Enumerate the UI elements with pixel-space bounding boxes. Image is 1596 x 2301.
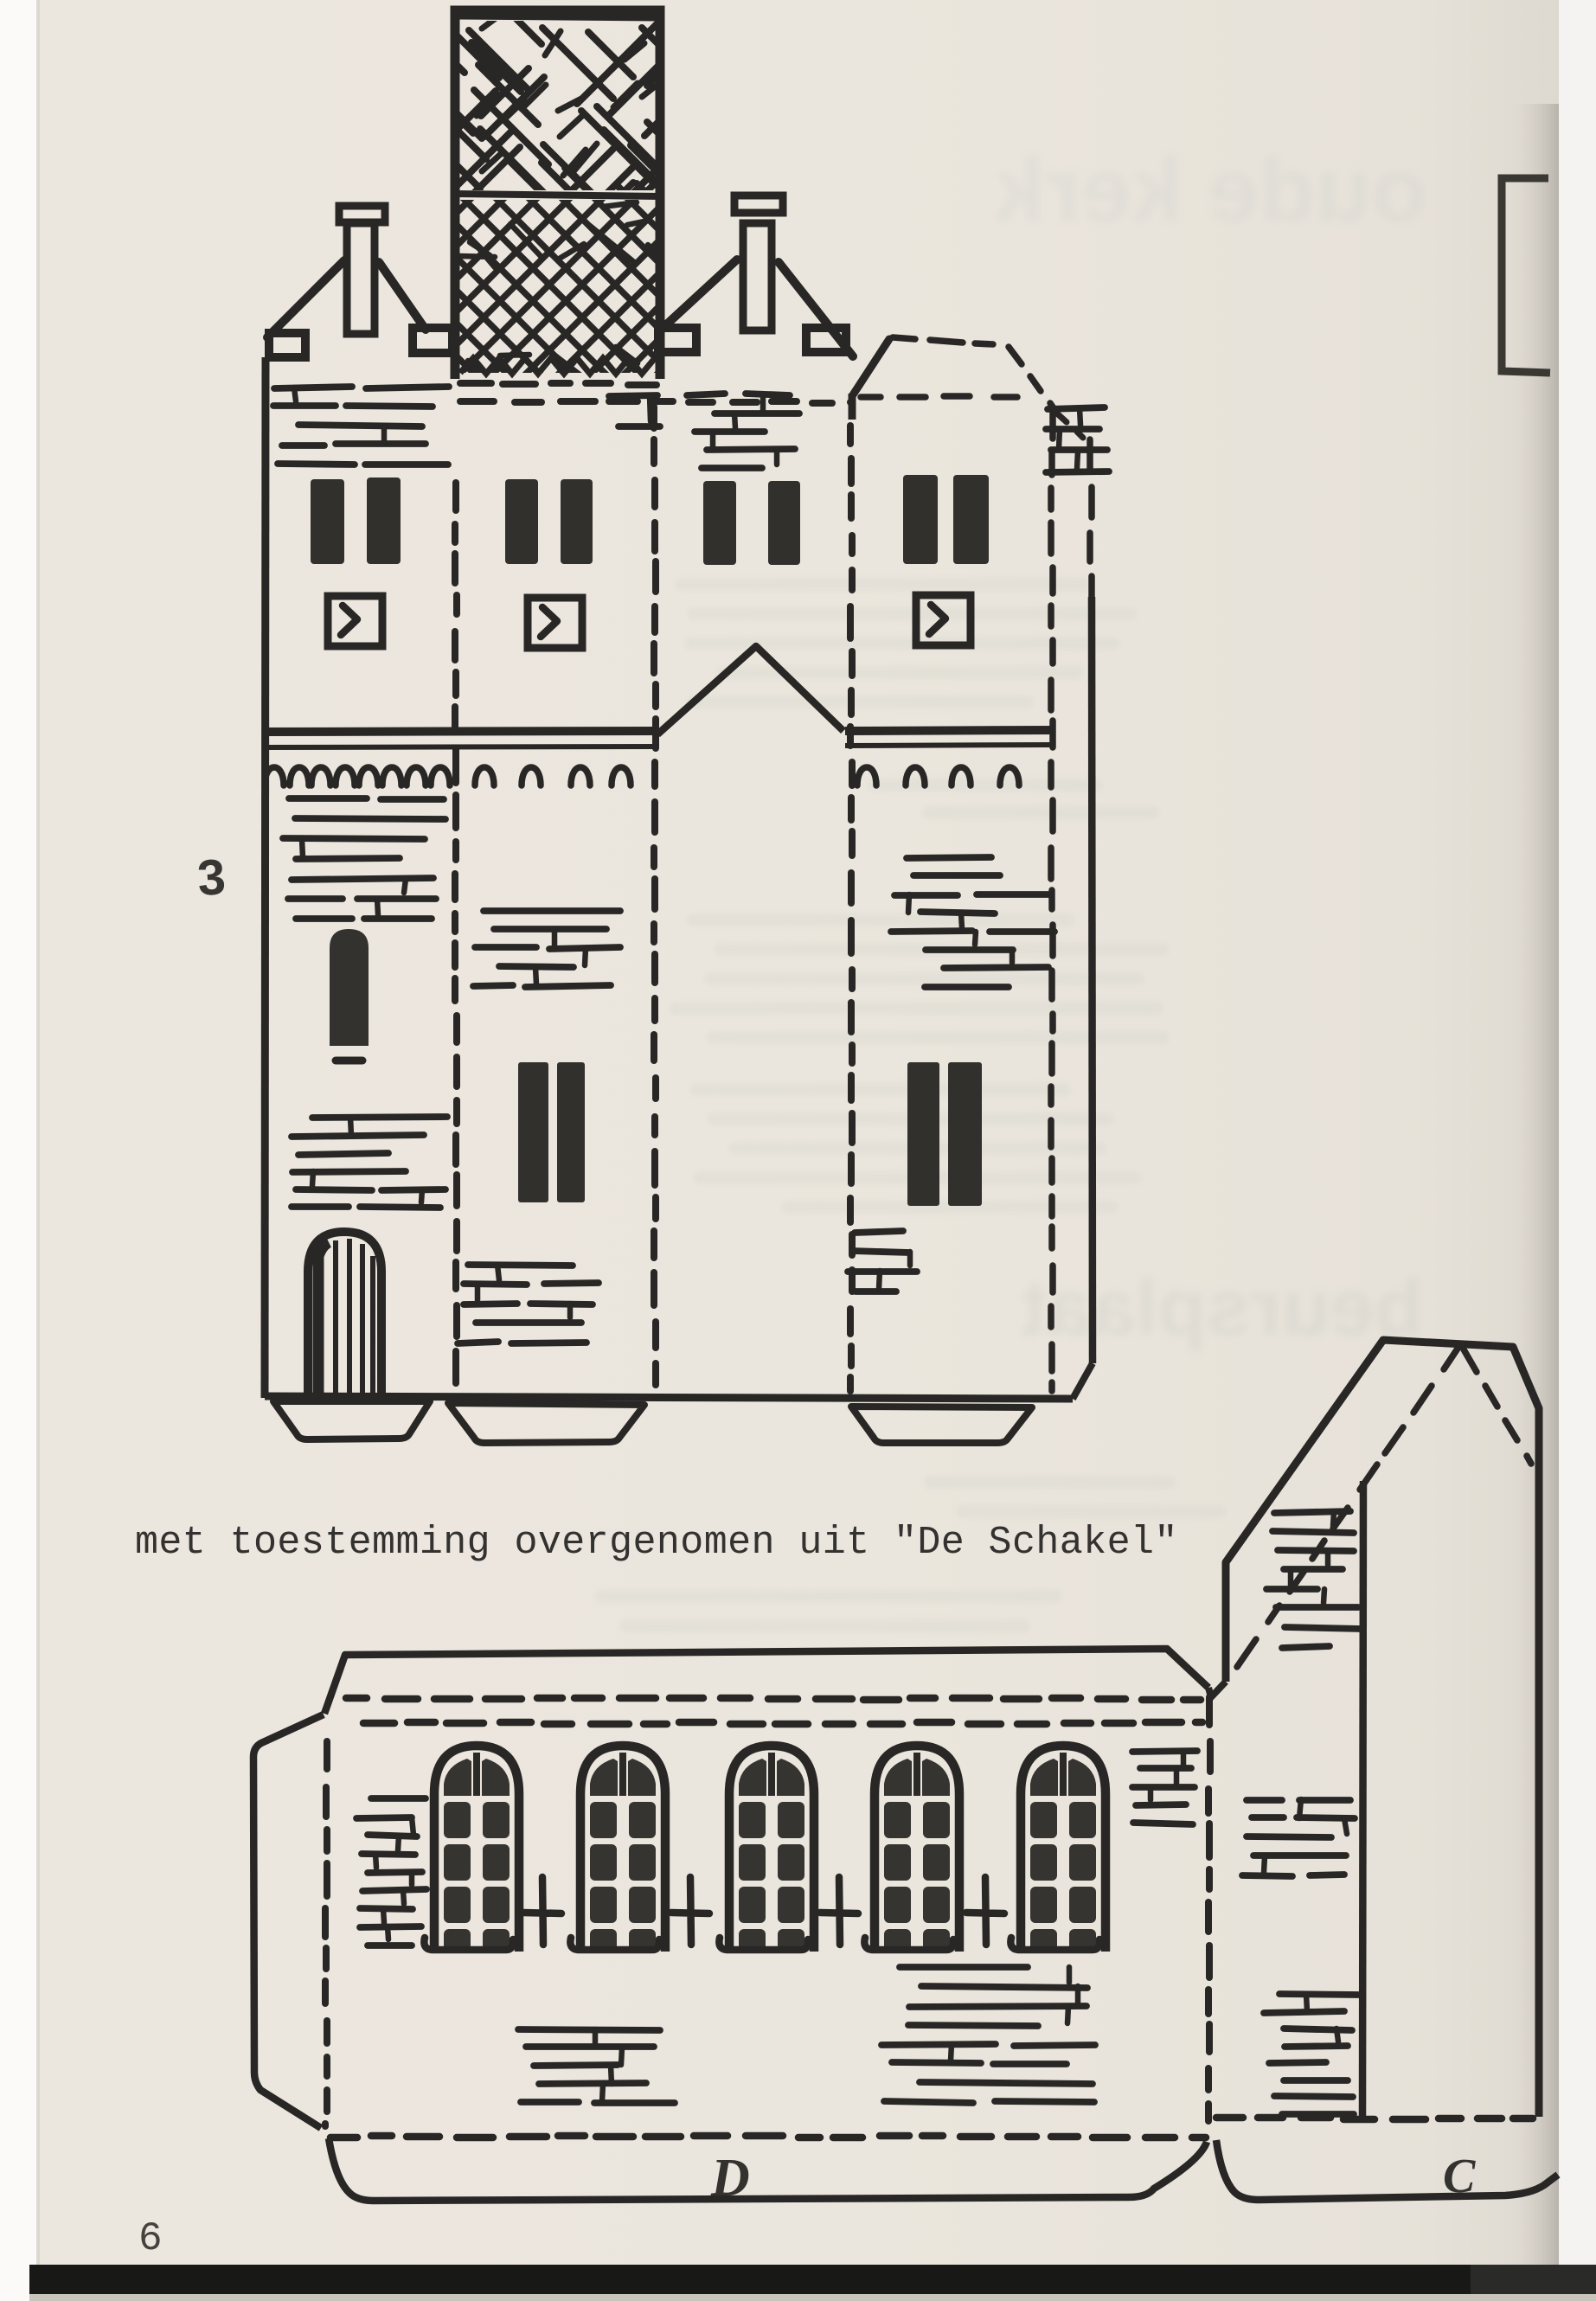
- svg-text:beursplaat: beursplaat: [1021, 1264, 1423, 1352]
- svg-text:3: 3: [195, 849, 228, 907]
- svg-text:oude kerk: oude kerk: [993, 139, 1427, 241]
- svg-text:6: 6: [138, 2216, 163, 2261]
- svg-text:met toestemming overgenomen ui: met toestemming overgenomen uit "De Scha…: [135, 1521, 1178, 1565]
- svg-text:C: C: [1443, 2150, 1476, 2203]
- svg-text:D: D: [710, 2149, 750, 2208]
